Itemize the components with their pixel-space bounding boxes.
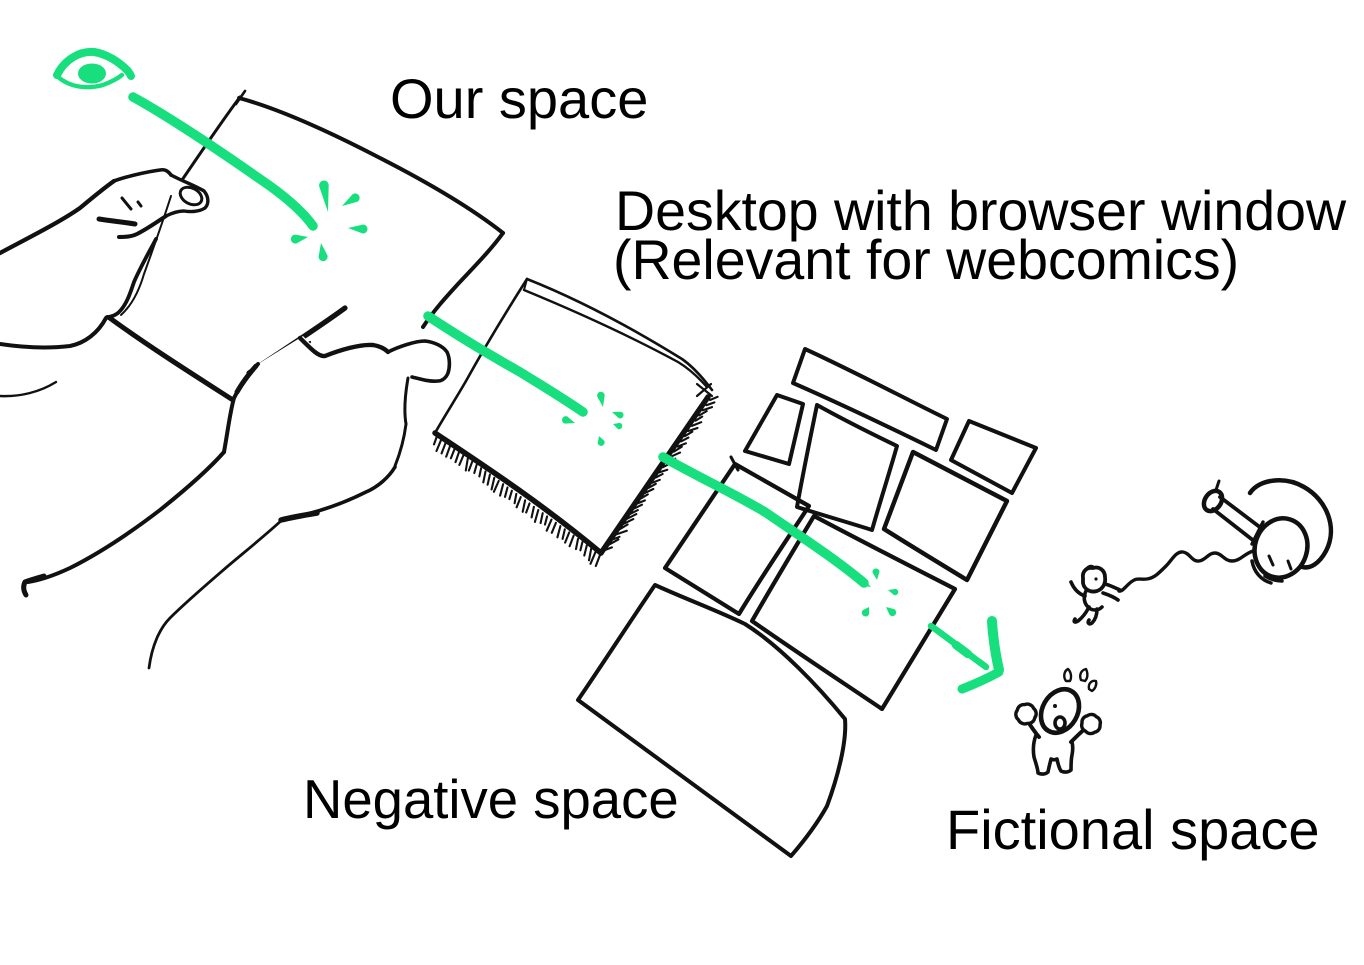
- svg-text:Fictional space: Fictional space: [946, 798, 1320, 861]
- svg-text:Negative space: Negative space: [303, 769, 679, 830]
- svg-text:Our space: Our space: [390, 67, 648, 130]
- svg-text:(Relevant for webcomics): (Relevant for webcomics): [613, 229, 1239, 291]
